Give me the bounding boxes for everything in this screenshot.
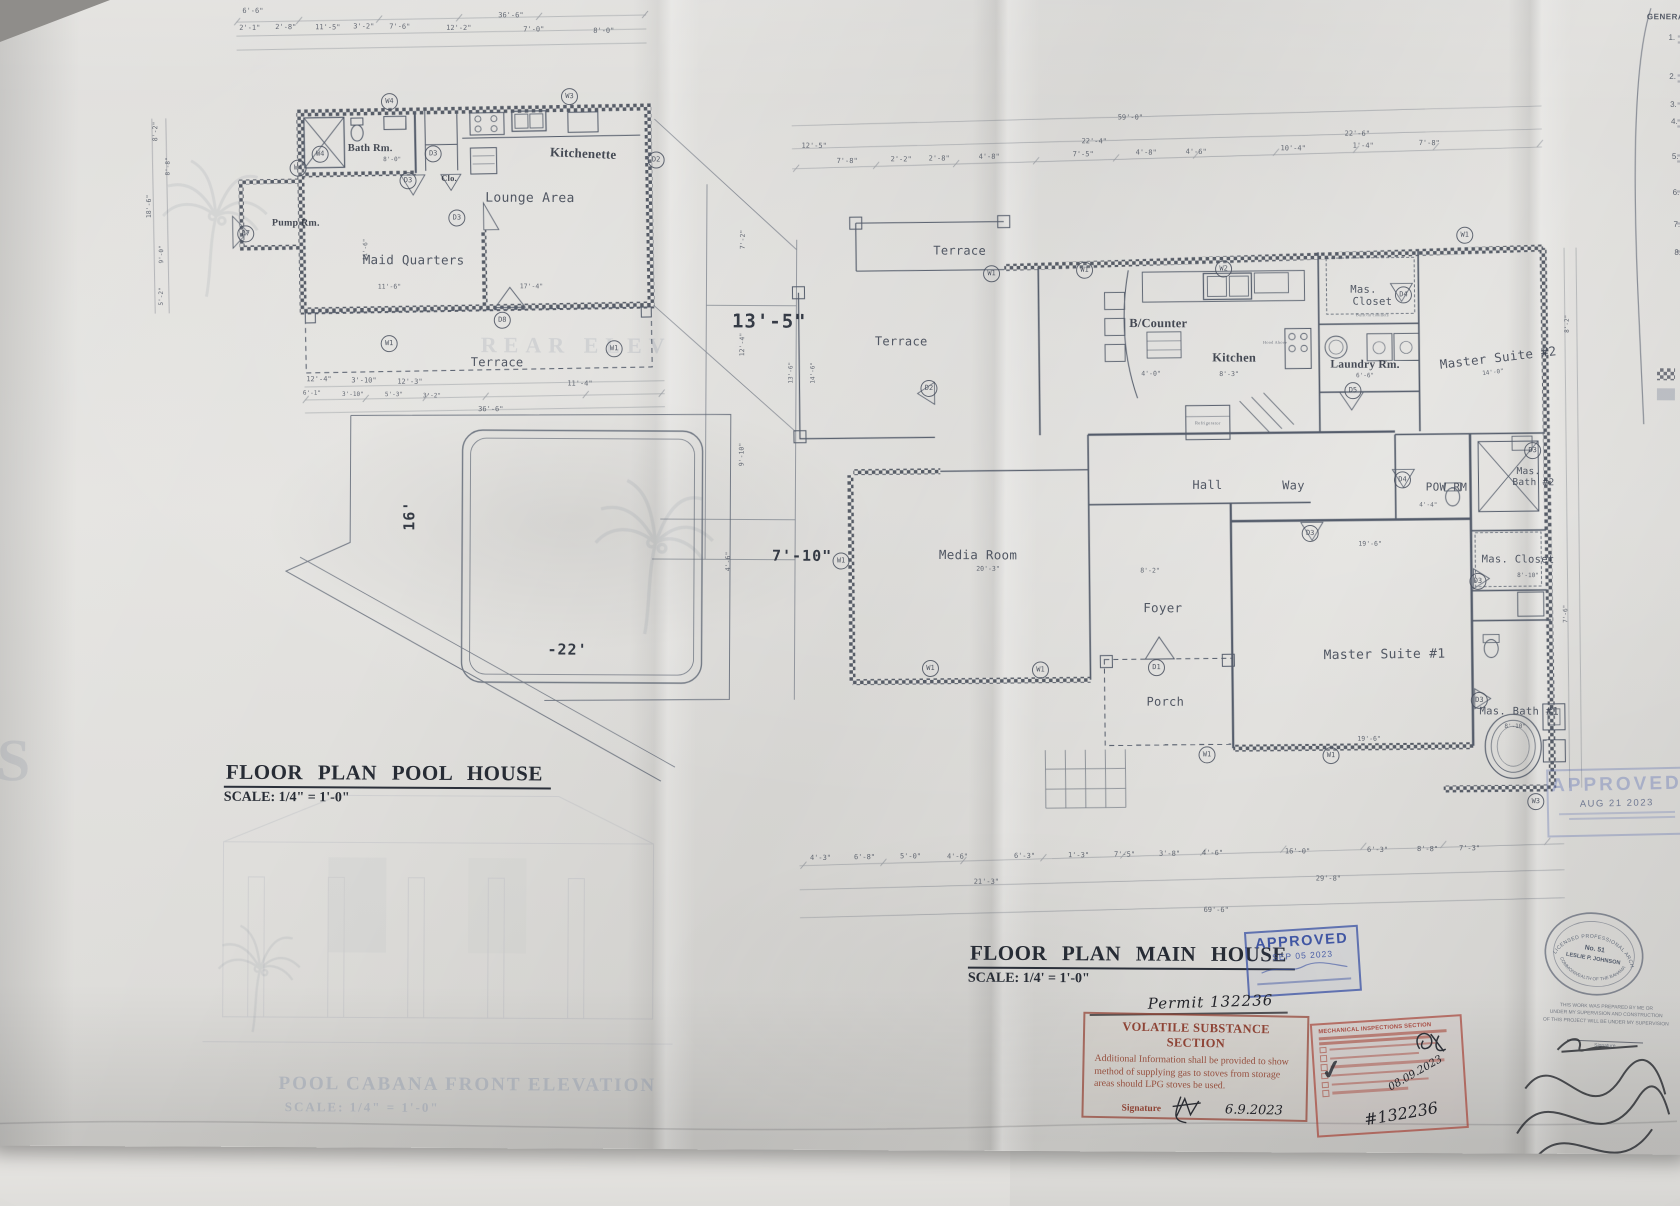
volatile-title: VOLATILE SUBSTANCE SECTION [1095,1019,1298,1053]
pool-house-scale: SCALE: 1/4" = 1'-0" [224,790,551,808]
general-notes-layer: 1.2.3.4.5.6.7.8. [0,0,1680,1154]
approved-stamp-sep: APPROVED SEP 05 2023 [1244,925,1362,998]
permit-handwriting: Permit 132236 [1148,991,1274,1013]
volatile-substance-box: VOLATILE SUBSTANCE SECTION Additional In… [1081,1012,1309,1122]
general-note-number: 4. [1671,117,1678,126]
volatile-signature-label: Signature [1122,1103,1162,1114]
architect-seal: LICENSED PROFESSIONAL ARCHITECT COMMONWE… [1536,902,1653,1006]
mechanical-permit-number: #132236 [1363,1098,1440,1129]
general-note-number: 2. [1669,72,1676,81]
approved-stamp-aug: APPROVED AUG 21 2023 [1546,767,1680,838]
blueprint-paper: REAR ELEVPOOL CABANA FRONT ELEVATIONSCAL… [0,0,1680,1154]
architect-signatures [1495,1019,1678,1154]
volatile-date: 6.9.2023 [1225,1103,1283,1119]
general-note-number: 5. [1672,152,1679,161]
seal-number: No. 51 [1584,944,1605,954]
pool-house-title-block: FLOOR PLAN POOL HOUSE SCALE: 1/4" = 1'-0… [224,760,551,808]
general-note-number: 7. [1673,220,1680,229]
blueprint-photo: REAR ELEVPOOL CABANA FRONT ELEVATIONSCAL… [0,0,1680,1206]
approved-word: APPROVED [1548,773,1680,798]
general-note-number: 6. [1673,188,1680,197]
general-note-number: 3. [1670,100,1677,109]
volatile-body: Additional Information shall be provided… [1094,1053,1297,1094]
volatile-signature-scribble [1167,1094,1220,1125]
seal-name: LESLIE P. JOHNSON [1565,952,1620,967]
general-note-number: 8. [1674,248,1680,257]
approved-date: AUG 21 2023 [1549,797,1680,811]
pool-house-title: FLOOR PLAN POOL HOUSE [224,760,551,790]
mechanical-initials-scribble [1404,1025,1450,1062]
mechanical-inspections-stamp: MECHANICAL INSPECTIONS SECTION ✓ 08.09.2… [1310,1014,1469,1138]
general-notes-title: GENERAL [1647,12,1680,21]
general-note-number: 1. [1668,33,1675,42]
